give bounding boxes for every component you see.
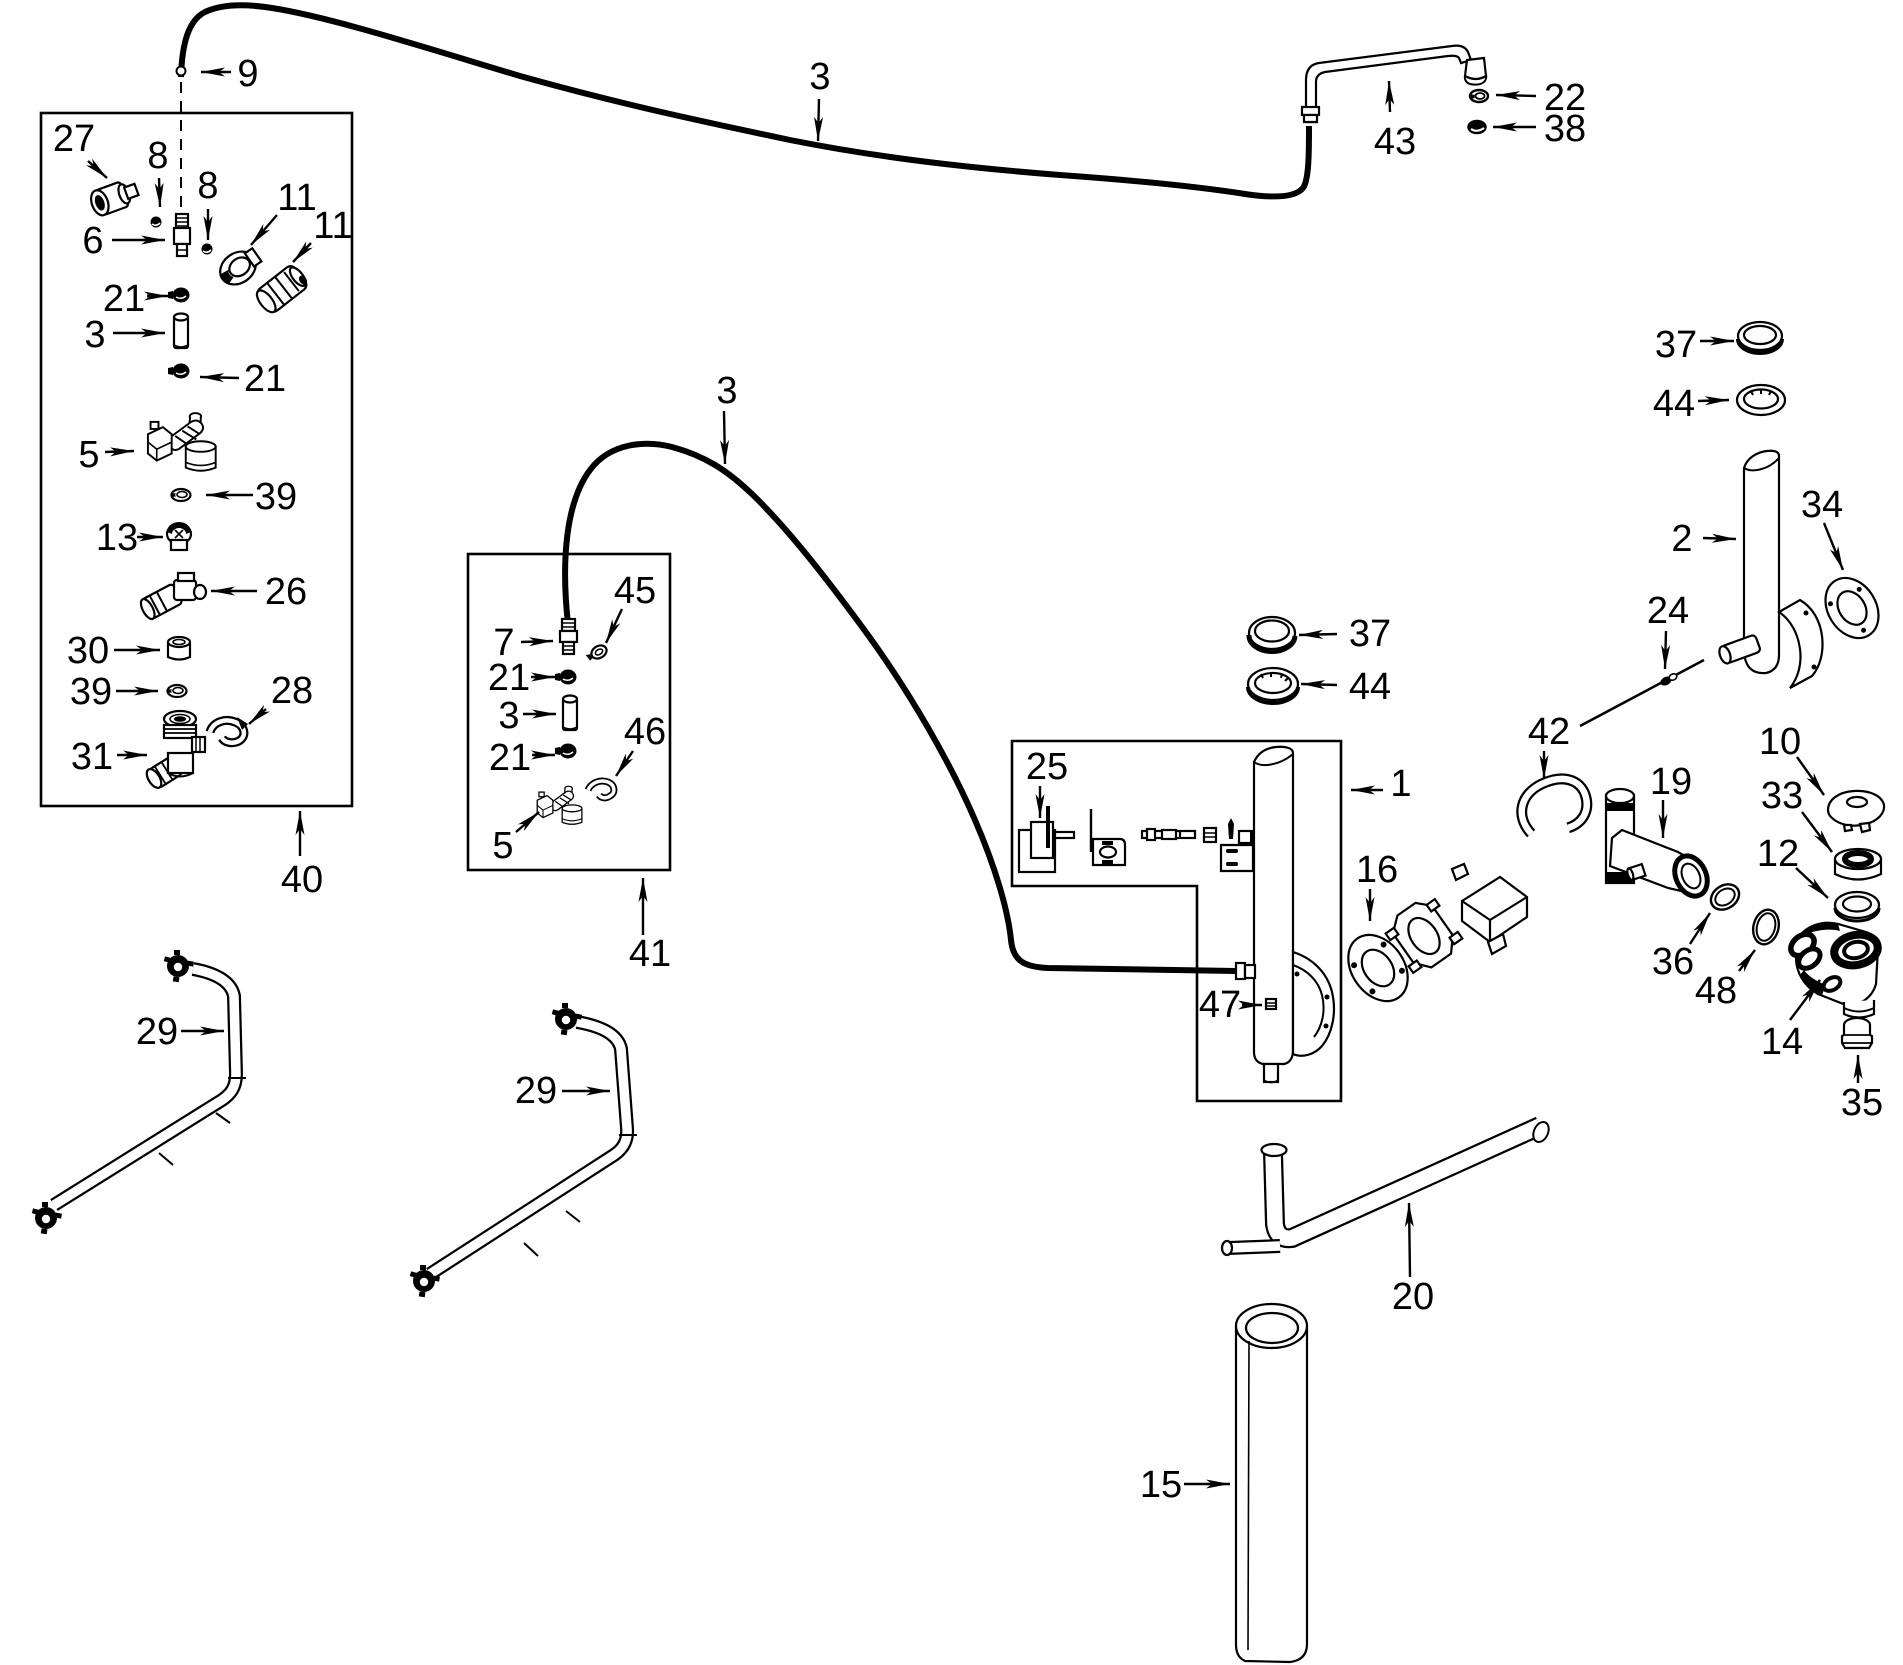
svg-text:43: 43: [1374, 121, 1416, 163]
svg-text:3: 3: [498, 695, 519, 737]
svg-text:8: 8: [147, 135, 168, 177]
svg-text:47: 47: [1199, 984, 1241, 1026]
svg-text:21: 21: [244, 358, 286, 400]
svg-text:28: 28: [271, 670, 313, 712]
svg-text:14: 14: [1761, 1021, 1803, 1063]
svg-text:16: 16: [1356, 849, 1398, 891]
svg-text:8: 8: [197, 165, 218, 207]
svg-text:25: 25: [1026, 746, 1068, 788]
svg-text:29: 29: [136, 1011, 178, 1053]
svg-text:5: 5: [492, 825, 513, 867]
svg-text:5: 5: [78, 434, 99, 476]
svg-text:10: 10: [1759, 721, 1801, 763]
svg-text:38: 38: [1544, 108, 1586, 150]
svg-text:37: 37: [1655, 324, 1697, 366]
svg-text:21: 21: [489, 737, 531, 779]
svg-text:15: 15: [1140, 1464, 1182, 1506]
svg-text:11: 11: [313, 205, 352, 247]
svg-text:40: 40: [281, 859, 323, 901]
svg-text:3: 3: [84, 314, 105, 356]
svg-text:33: 33: [1761, 775, 1803, 817]
svg-text:34: 34: [1801, 484, 1843, 526]
svg-text:19: 19: [1650, 761, 1692, 803]
svg-text:27: 27: [53, 118, 95, 160]
svg-text:29: 29: [515, 1070, 557, 1112]
svg-text:3: 3: [716, 370, 737, 412]
svg-text:39: 39: [255, 476, 297, 518]
svg-text:1: 1: [1390, 763, 1411, 805]
svg-text:24: 24: [1647, 590, 1689, 632]
svg-text:42: 42: [1528, 711, 1570, 753]
svg-text:46: 46: [624, 711, 666, 753]
svg-text:26: 26: [265, 571, 307, 613]
svg-text:3: 3: [809, 56, 830, 98]
svg-text:21: 21: [103, 278, 145, 320]
svg-text:37: 37: [1349, 613, 1391, 655]
svg-text:13: 13: [96, 517, 138, 559]
svg-text:41: 41: [629, 933, 671, 975]
svg-text:39: 39: [70, 671, 112, 713]
svg-text:11: 11: [277, 177, 316, 219]
svg-text:44: 44: [1653, 383, 1695, 425]
svg-text:21: 21: [488, 657, 530, 699]
svg-text:35: 35: [1841, 1082, 1883, 1124]
svg-text:12: 12: [1757, 833, 1799, 875]
svg-text:2: 2: [1671, 518, 1692, 560]
svg-text:45: 45: [614, 570, 656, 612]
svg-text:36: 36: [1652, 941, 1694, 983]
svg-text:44: 44: [1349, 666, 1391, 708]
svg-text:20: 20: [1392, 1276, 1434, 1318]
svg-text:31: 31: [71, 736, 113, 778]
svg-text:9: 9: [237, 53, 258, 95]
svg-text:6: 6: [82, 220, 103, 262]
svg-text:30: 30: [67, 630, 109, 672]
svg-text:48: 48: [1695, 970, 1737, 1012]
